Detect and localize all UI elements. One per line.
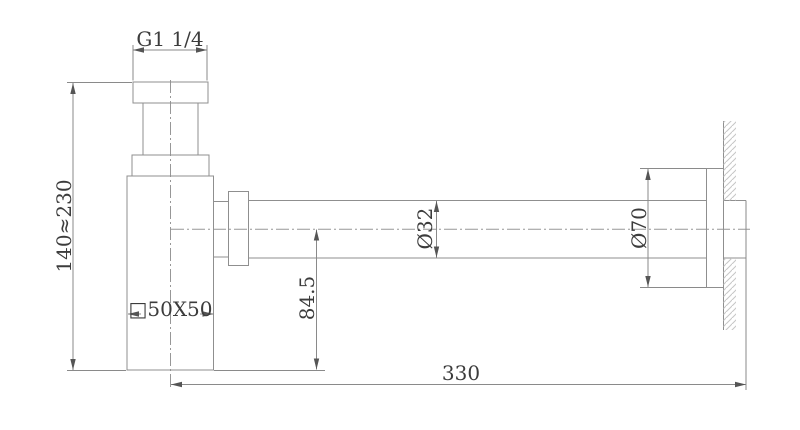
arrowhead-bottom: [645, 276, 650, 287]
arrowhead-bottom: [314, 359, 319, 370]
bottle-trap-technical-drawing: G1 1/4 140≈230 □50X50 84.5 Ø32: [0, 0, 800, 430]
dimension-label-body-section: □50X50: [128, 297, 212, 321]
dimension-label-trap-depth: 84.5: [295, 276, 319, 321]
wall-hatch-upper: [724, 121, 737, 201]
arrowhead-top: [645, 169, 650, 180]
compression-nut: [229, 192, 249, 266]
dimension-inlet-thread: G1 1/4: [133, 27, 207, 81]
dimension-height-range: 140≈230: [52, 83, 132, 371]
arrowhead-bottom: [70, 359, 75, 370]
dimension-body-section: □50X50: [128, 297, 214, 321]
wall-hatch-lower: [724, 258, 737, 330]
wall: [724, 121, 737, 330]
arrowhead-top: [314, 230, 319, 241]
arrowhead-left: [171, 382, 182, 387]
centerlines: [171, 80, 751, 390]
arrowhead-right: [735, 382, 746, 387]
dimension-label-flange-diameter: Ø70: [627, 207, 651, 249]
dimension-label-pipe-diameter: Ø32: [413, 208, 437, 250]
drawing-canvas: G1 1/4 140≈230 □50X50 84.5 Ø32: [0, 0, 800, 430]
dimension-trap-depth: 84.5: [214, 230, 325, 371]
wall-flange: [707, 169, 724, 288]
dimension-label-wall-distance: 330: [442, 361, 480, 385]
dimension-label-height-range: 140≈230: [52, 179, 76, 272]
dimension-label-thread: G1 1/4: [136, 27, 203, 51]
arrowhead-top: [70, 83, 75, 94]
dimension-pipe-diameter: Ø32: [413, 201, 439, 259]
dimension-flange-diameter: Ø70: [627, 169, 706, 288]
